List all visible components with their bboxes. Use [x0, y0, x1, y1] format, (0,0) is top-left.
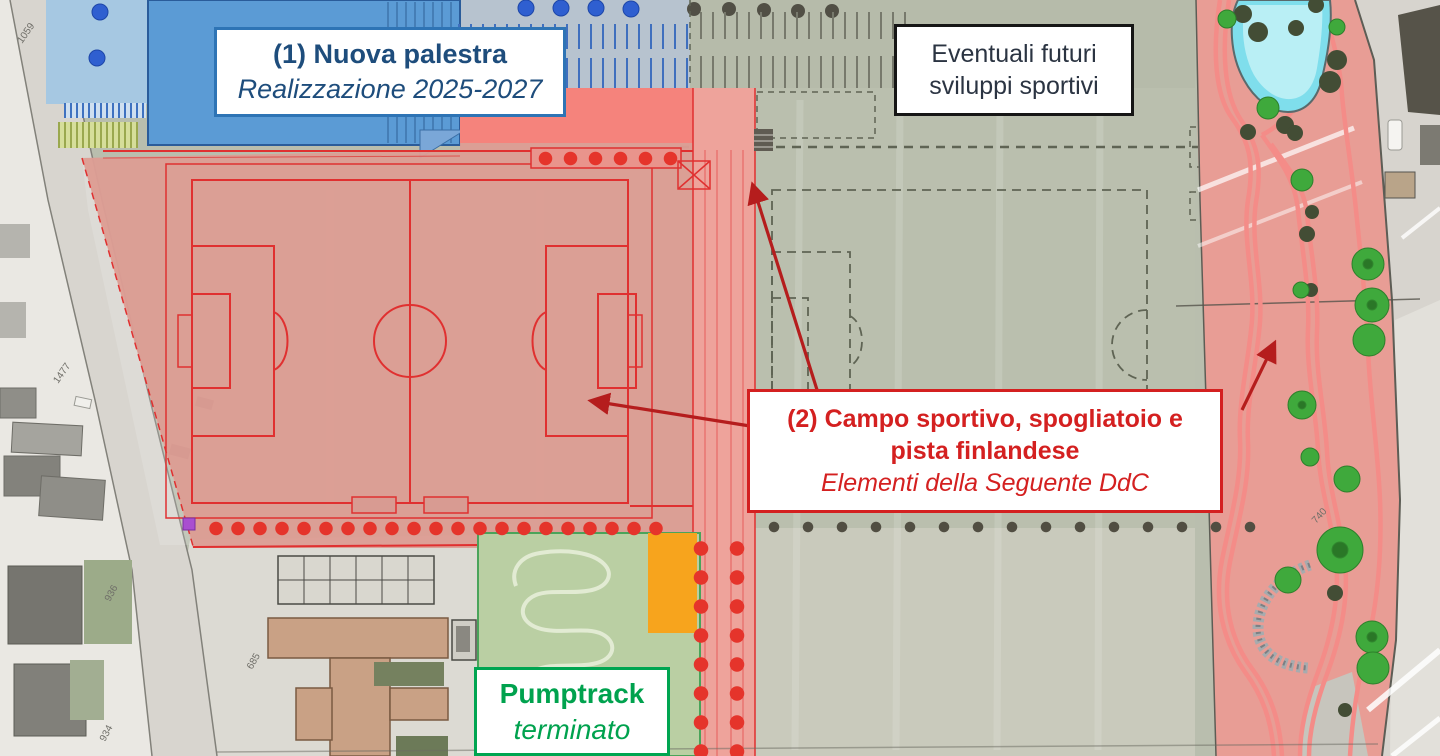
- campo-title-line2: pista finlandese: [891, 435, 1080, 467]
- hedge-band: [531, 148, 681, 168]
- sviluppi-line2: sviluppi sportivi: [929, 70, 1099, 102]
- parked-car-box: [452, 620, 476, 660]
- grid-structure: [278, 556, 434, 604]
- label-pumptrack: Pumptrack terminato: [474, 667, 670, 756]
- palestra-subtitle: Realizzazione 2025-2027: [238, 72, 543, 107]
- site-plan-map: 1059 1477 936 934 685 740 (1) Nuova pale…: [0, 0, 1440, 756]
- garden-patch-2: [396, 736, 448, 756]
- sviluppi-line1: Eventuali futuri: [931, 38, 1096, 70]
- small-structure-right: [1385, 172, 1415, 198]
- building-right-edge: [1420, 125, 1440, 165]
- garden-patch: [374, 662, 444, 686]
- campo-title-line1: (2) Campo sportivo, spogliatoio e: [787, 403, 1183, 435]
- label-nuova-palestra: (1) Nuova palestra Realizzazione 2025-20…: [214, 27, 566, 117]
- lower-field-area: [755, 528, 1195, 756]
- label-futuri-sviluppi: Eventuali futuri sviluppi sportivi: [894, 24, 1134, 116]
- pumptrack-title: Pumptrack: [500, 676, 645, 712]
- label-campo-sportivo: (2) Campo sportivo, spogliatoio e pista …: [747, 389, 1223, 513]
- pumptrack-subtitle: terminato: [514, 712, 631, 748]
- magenta-marker: [183, 518, 195, 530]
- stairs-block: [754, 129, 773, 151]
- palestra-title: (1) Nuova palestra: [273, 37, 507, 72]
- red-corridor: [693, 88, 755, 756]
- campo-subtitle: Elementi della Seguente DdC: [821, 467, 1149, 499]
- orange-area: [648, 533, 697, 633]
- white-van: [1388, 120, 1402, 150]
